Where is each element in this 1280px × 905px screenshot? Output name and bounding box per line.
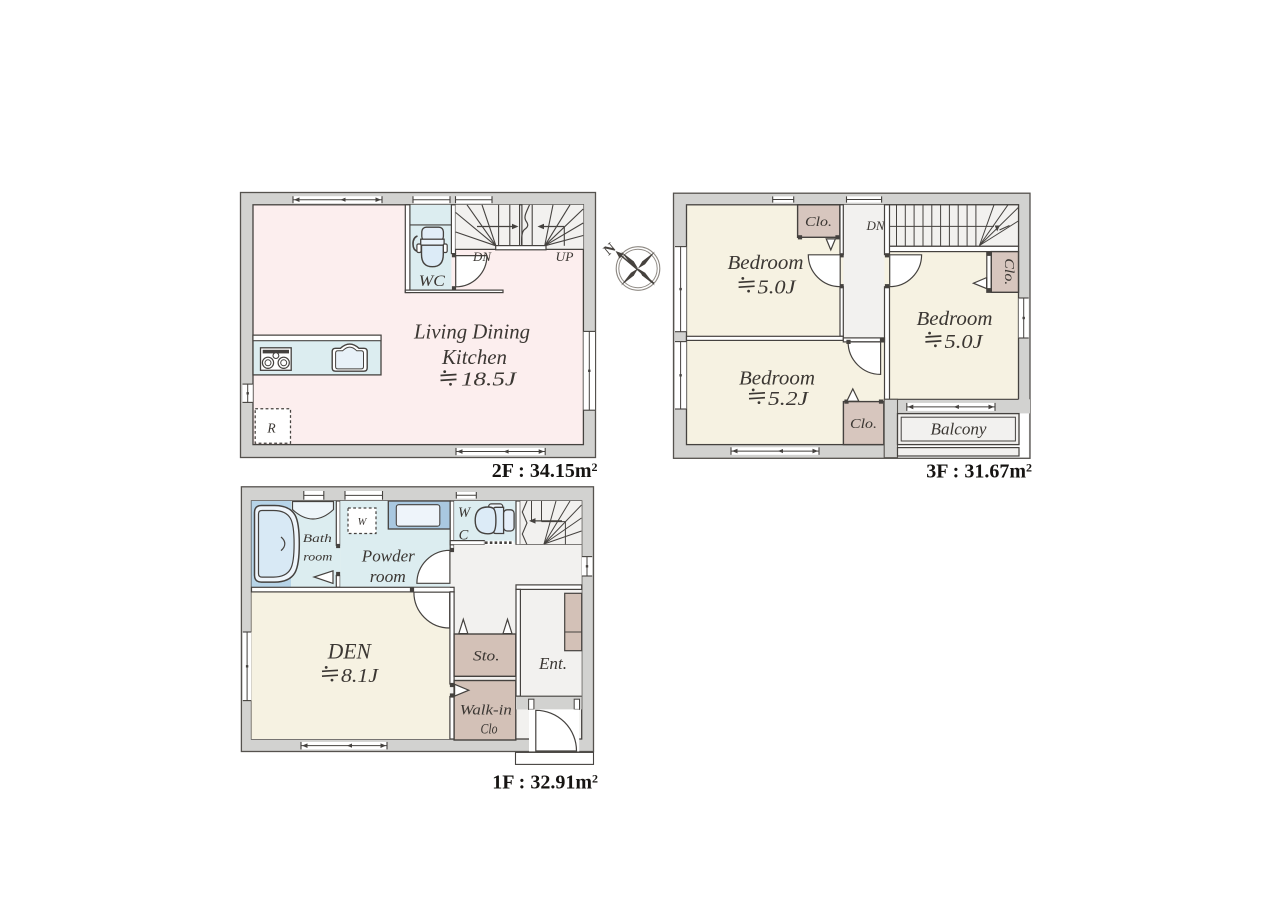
svg-text:Ent.: Ent. xyxy=(538,654,567,673)
svg-text:Sto.: Sto. xyxy=(473,649,500,665)
svg-text:DN: DN xyxy=(472,249,492,264)
svg-text:Bath: Bath xyxy=(303,533,332,545)
svg-text:5.2J: 5.2J xyxy=(768,389,810,410)
svg-text:UP: UP xyxy=(556,249,574,264)
svg-text:Clo.: Clo. xyxy=(1002,258,1017,285)
svg-text:Bedroom: Bedroom xyxy=(728,252,804,274)
svg-text:Clo: Clo xyxy=(481,722,498,738)
svg-text:Powder: Powder xyxy=(361,547,416,566)
svg-text:C: C xyxy=(459,528,469,544)
svg-text:2F : 34.15m2: 2F : 34.15m2 xyxy=(492,460,598,482)
svg-text:DN: DN xyxy=(866,218,886,233)
svg-text:W: W xyxy=(358,517,368,528)
svg-text:R: R xyxy=(266,421,276,436)
svg-text:8.1J: 8.1J xyxy=(341,665,379,687)
svg-text:1F : 32.91m2: 1F : 32.91m2 xyxy=(492,772,598,794)
svg-text:Balcony: Balcony xyxy=(931,420,988,439)
svg-text:18.5J: 18.5J xyxy=(461,369,517,391)
svg-text:5.0J: 5.0J xyxy=(758,277,798,298)
svg-text:W: W xyxy=(458,505,472,521)
svg-text:Clo.: Clo. xyxy=(805,214,832,229)
svg-text:Bedroom: Bedroom xyxy=(917,308,993,330)
svg-text:5.0J: 5.0J xyxy=(945,332,985,353)
svg-text:Living Dining: Living Dining xyxy=(413,320,530,344)
svg-text:room: room xyxy=(370,567,406,586)
svg-text:Clo.: Clo. xyxy=(850,416,877,431)
svg-text:Walk-in: Walk-in xyxy=(460,703,512,719)
svg-text:WC: WC xyxy=(419,273,446,290)
svg-text:DEN: DEN xyxy=(327,639,372,664)
svg-text:3F : 31.67m2: 3F : 31.67m2 xyxy=(926,461,1032,483)
svg-text:Kitchen: Kitchen xyxy=(441,345,507,369)
svg-text:Bedroom: Bedroom xyxy=(739,367,815,389)
svg-text:room: room xyxy=(303,552,332,564)
